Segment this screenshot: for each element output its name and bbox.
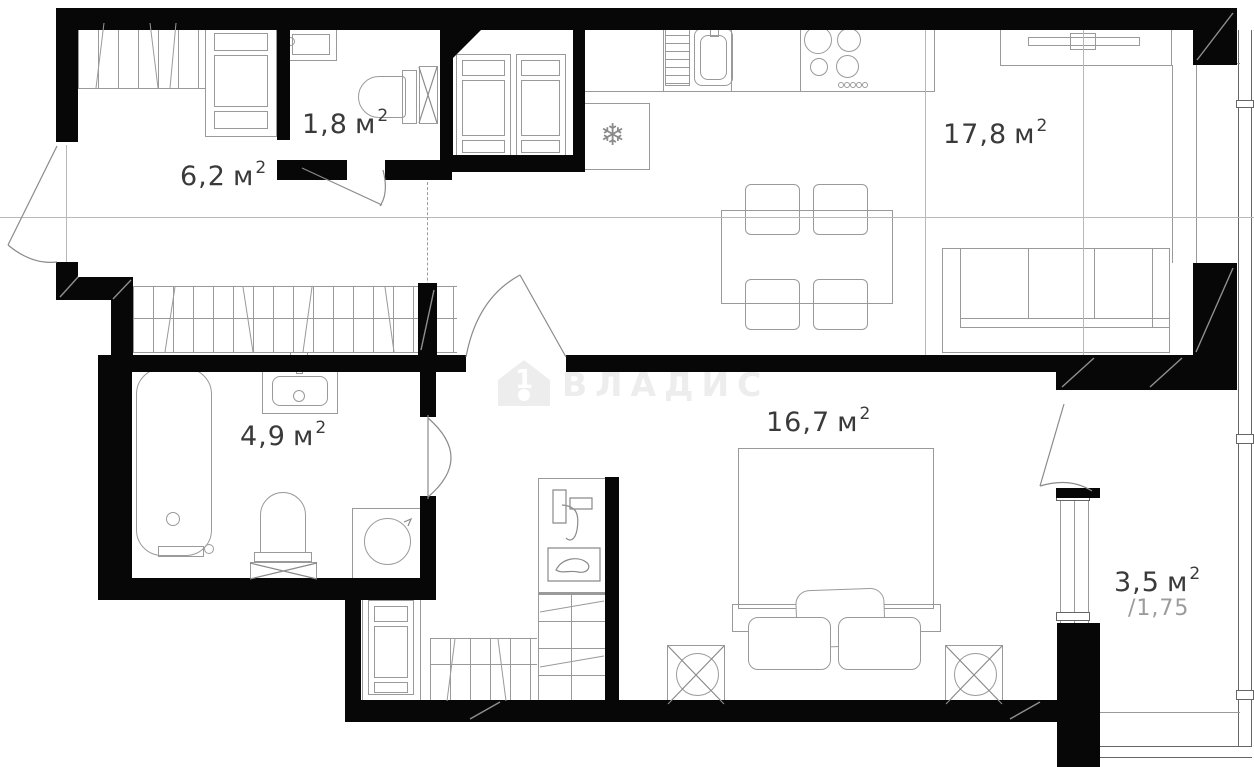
wall: [1057, 623, 1100, 767]
pillow-icon: [748, 617, 831, 670]
wall: [1056, 355, 1237, 390]
wall: [345, 700, 1057, 722]
wall: [566, 355, 1056, 372]
nightstand-icon: [676, 653, 719, 696]
bedroom-wardrobe-icon: [430, 638, 537, 702]
bathtub-tap-icon: [204, 544, 214, 554]
window-transom-mark: [1056, 612, 1090, 621]
bath-sink-tap-icon: [293, 390, 305, 402]
room-label-wc: 1,8м2: [302, 108, 388, 140]
chair-icon: [813, 279, 868, 330]
vent-unit-icon: [521, 140, 560, 153]
shelf-unit-icon: [538, 593, 606, 702]
room-label-kitchen-living: 17,8м2: [943, 118, 1047, 150]
hall-wardrobe-rail: [133, 318, 457, 319]
room-label-bedroom: 16,7м2: [766, 406, 870, 438]
vent-unit-icon: [462, 60, 505, 76]
living-door-icon: [520, 275, 566, 357]
sofa-icon: [942, 248, 1170, 353]
kitchen-counter-divider: [800, 22, 801, 91]
balcony-glazing: [1238, 30, 1252, 746]
sofa-icon: [960, 248, 961, 327]
kitchen-drawer-unit-icon: [665, 26, 690, 86]
hob-burner-icon: [810, 58, 828, 76]
wall: [277, 18, 290, 140]
kitchen-sink-icon: [700, 35, 727, 80]
floor-plan: 1 ВЛАДИС: [0, 0, 1254, 767]
wall: [420, 496, 436, 600]
balcony-door-icon: [1040, 404, 1064, 486]
glazing-transom-mark: [1236, 690, 1254, 700]
sofa-icon: [1028, 248, 1029, 318]
section-line-horizontal: [0, 217, 1254, 218]
wall: [573, 20, 585, 172]
pillow-icon: [838, 617, 921, 670]
wc-toilet-tank-icon: [402, 70, 417, 124]
wc-vent-box-icon: [419, 66, 438, 124]
room-label-balcony: 3,5м2 /1,75: [1114, 566, 1200, 621]
entry-door-frame-line: [66, 145, 67, 263]
bedroom-window: [1088, 495, 1089, 623]
glazing-transom-mark: [1236, 100, 1254, 108]
axis-line-vertical-2: [1083, 22, 1084, 356]
wall: [1193, 8, 1237, 65]
kitchen-counter-edge: [585, 91, 935, 92]
wall: [98, 578, 432, 600]
vent-unit-icon: [521, 80, 560, 136]
sofa-icon: [1094, 248, 1095, 318]
hob-knob-icon: [862, 82, 868, 88]
vent-unit-icon: [462, 140, 505, 153]
vent-unit-icon: [462, 80, 505, 136]
entrance-door-arc: [8, 245, 57, 262]
bedroom-wardrobe-rail: [430, 664, 537, 665]
hob-burner-icon: [837, 28, 861, 52]
axis-line-vertical-1: [925, 30, 926, 356]
kitchen-counter-divider: [663, 22, 664, 91]
room-label-hall: 6,2м2: [180, 160, 266, 192]
vent-unit-icon: [521, 60, 560, 76]
bed-icon: [738, 448, 934, 609]
wall: [130, 355, 466, 372]
room-label-bathroom: 4,9м2: [240, 420, 326, 452]
wall: [111, 277, 133, 359]
hall-wardrobe-icon: [133, 286, 457, 353]
living-door-arc: [466, 275, 520, 357]
entrance-door-icon: [8, 146, 57, 245]
wall: [440, 20, 453, 165]
plumbing-niche: [538, 478, 607, 593]
wall: [1056, 488, 1100, 498]
wall: [1193, 263, 1237, 360]
wall: [277, 160, 347, 180]
hob-burner-icon: [836, 55, 859, 78]
glazing-transom-mark: [1236, 434, 1254, 444]
bathroom-door-arc: [428, 418, 451, 497]
hall-closet-icon: [78, 22, 205, 89]
svg-text:1: 1: [515, 365, 533, 395]
wall: [440, 155, 585, 172]
chair-icon: [745, 279, 800, 330]
wall: [56, 8, 1196, 30]
bath-toilet-icon: [260, 492, 306, 553]
vent-unit-icon: [374, 682, 408, 693]
bathtub-tap-icon: [158, 546, 204, 557]
balcony-reduced-area: /1,75: [1128, 596, 1200, 621]
living-room-window: [1196, 65, 1197, 263]
living-room-window: [1172, 65, 1173, 263]
chair-icon: [745, 184, 800, 235]
nightstand-icon: [954, 653, 997, 696]
wc-sink-icon: [292, 34, 330, 55]
hall-cabinet-icon: [214, 111, 268, 129]
wall: [605, 477, 619, 703]
wall: [345, 580, 361, 712]
wall: [56, 8, 78, 142]
watermark-house-icon: 1: [498, 358, 550, 406]
sofa-icon: [1152, 248, 1153, 327]
wall: [420, 372, 436, 417]
sofa-icon: [960, 327, 1170, 328]
bath-toilet-base-icon: [254, 552, 312, 562]
kitchen-counter-end: [934, 22, 935, 91]
washing-machine-drum-icon: [364, 518, 411, 565]
wall: [418, 283, 437, 355]
balcony-floor-line: [1100, 712, 1240, 713]
hob-burner-icon: [804, 26, 832, 54]
sofa-icon: [960, 318, 1170, 319]
snowflake-icon: ❄: [600, 121, 625, 151]
vent-unit-icon: [374, 606, 408, 622]
bedroom-window: [1074, 495, 1075, 623]
bathtub-drain-icon: [166, 512, 180, 526]
balcony-area: 3,5м2: [1114, 566, 1200, 598]
bathtub-icon: [136, 368, 212, 556]
bedroom-window: [1060, 495, 1061, 623]
hall-cabinet-icon: [214, 33, 268, 51]
vent-unit-icon: [374, 626, 408, 678]
wall: [98, 355, 132, 600]
hall-cabinet-icon: [214, 55, 268, 107]
chair-icon: [813, 184, 868, 235]
balcony-bottom-glazing: [1098, 746, 1252, 758]
shelf-divider: [571, 593, 572, 702]
